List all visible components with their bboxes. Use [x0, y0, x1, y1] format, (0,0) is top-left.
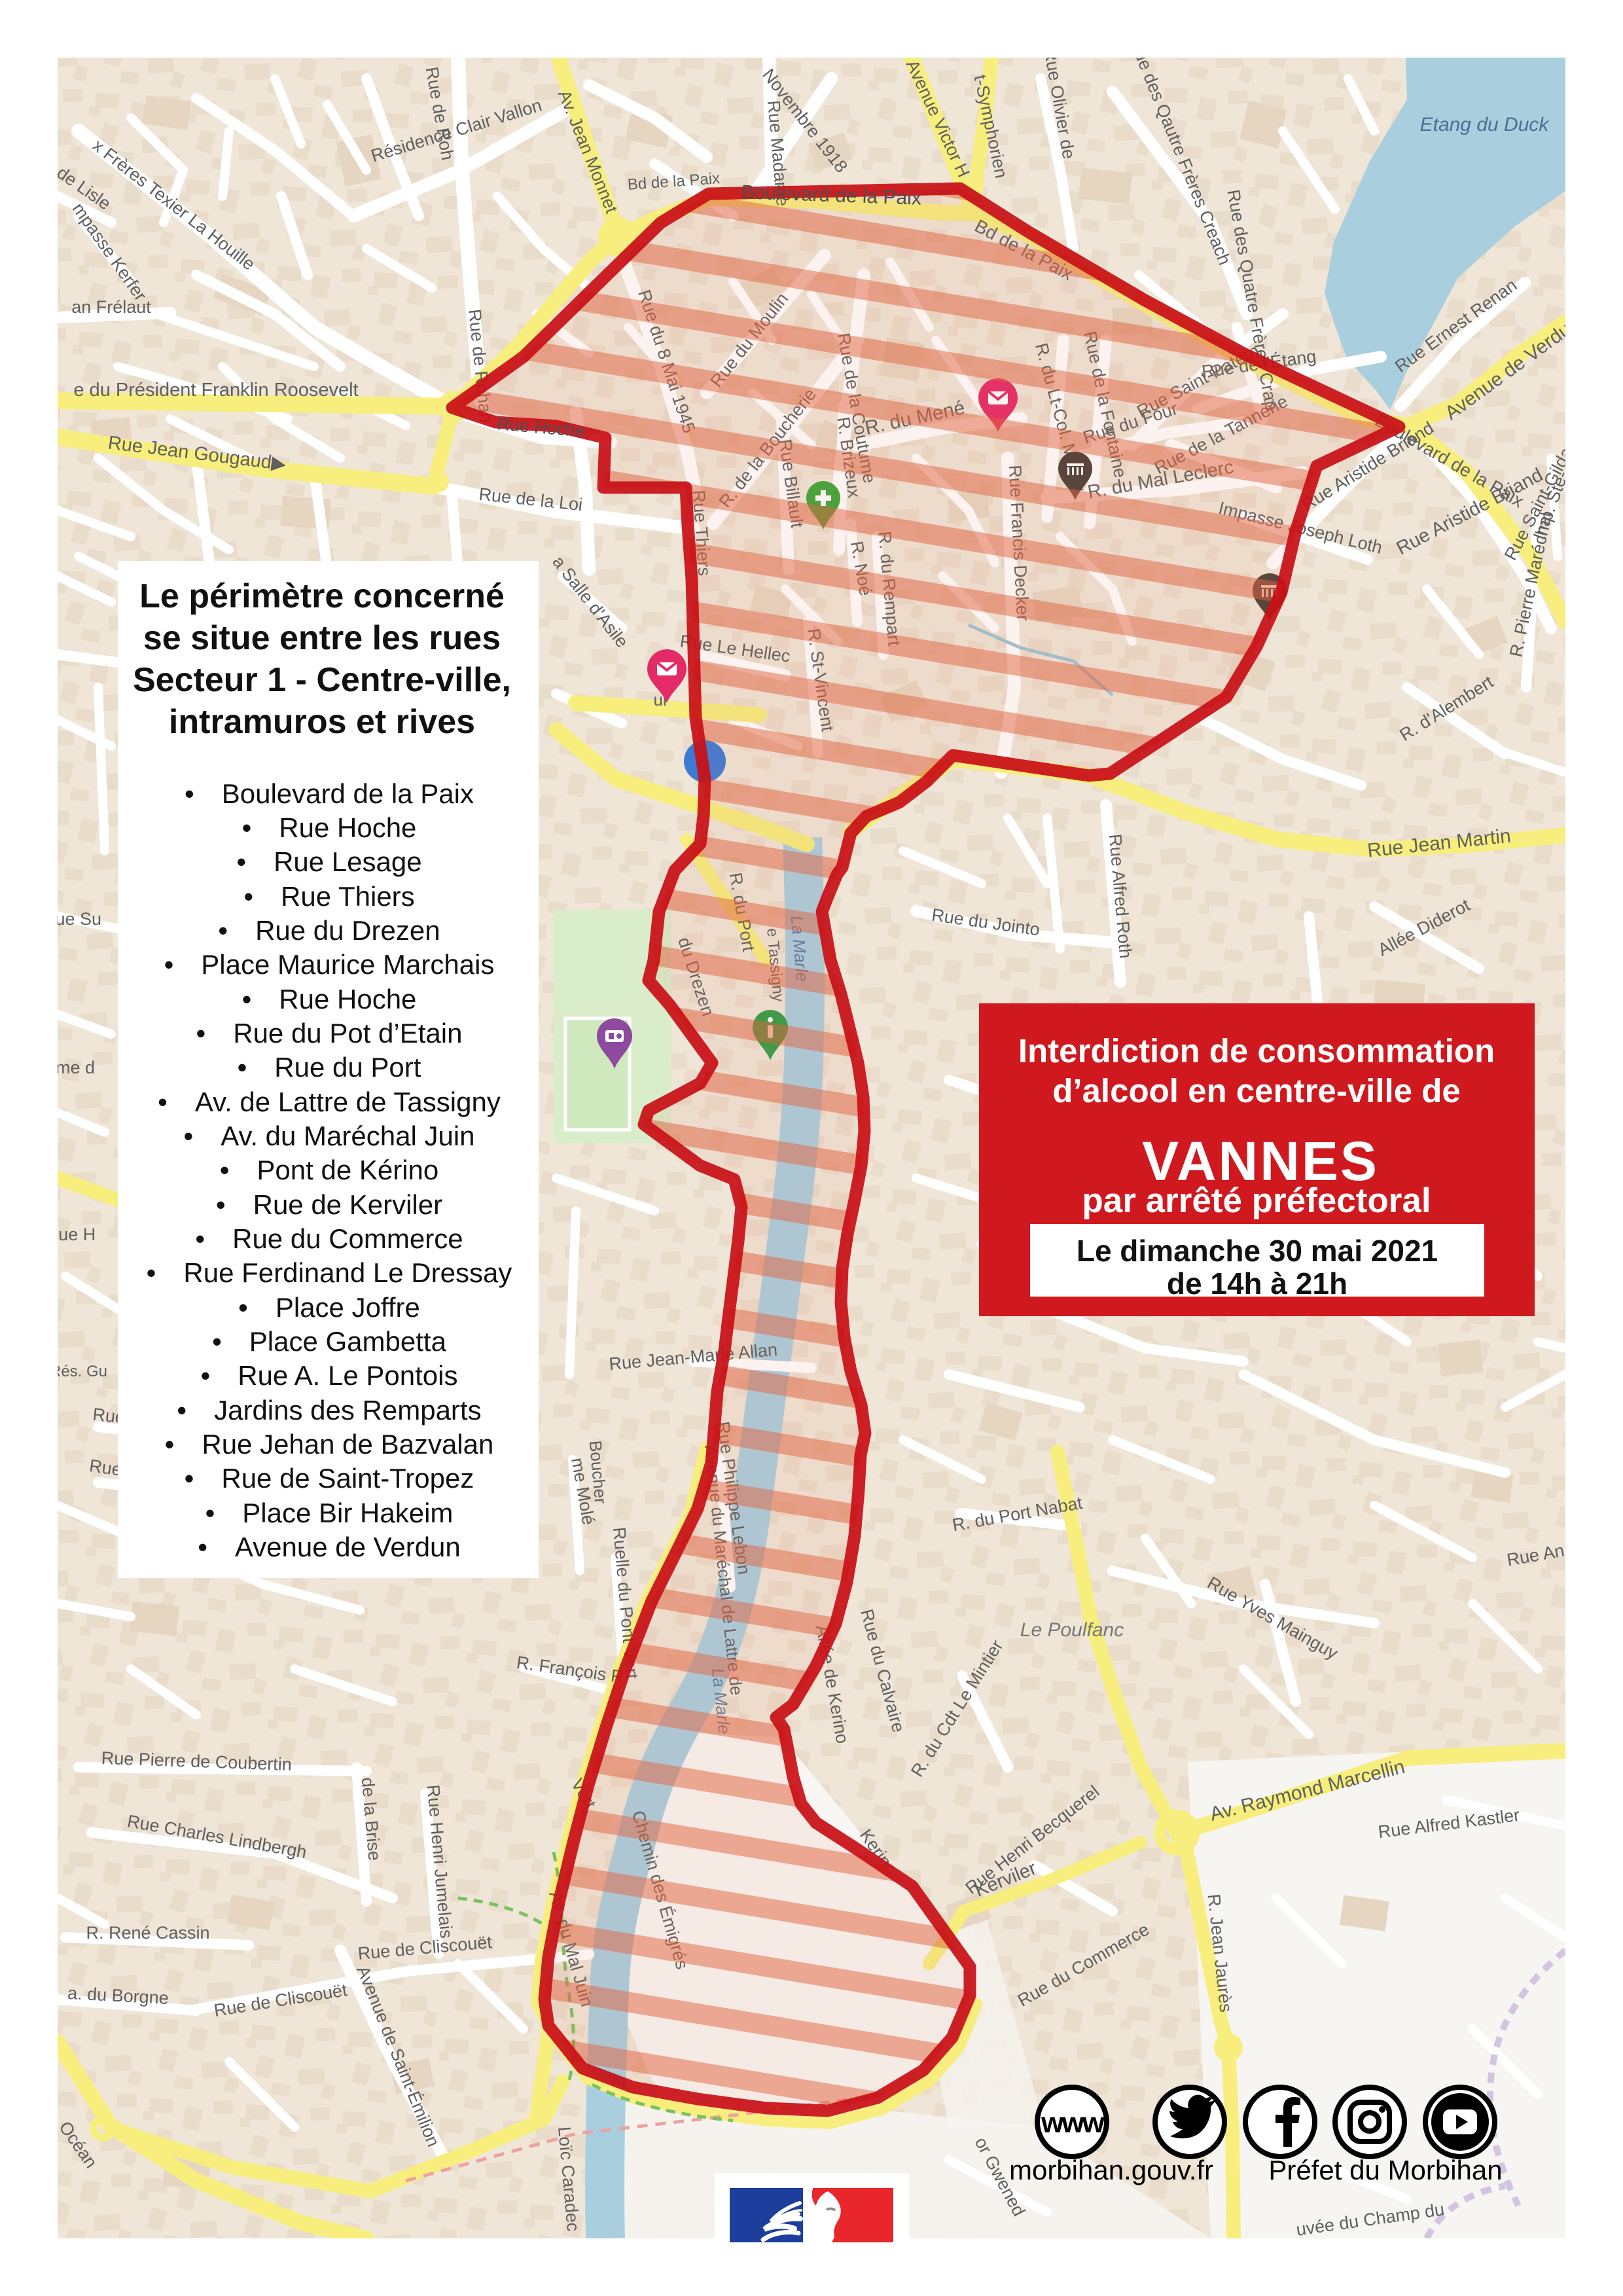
svg-text:• Rue A. Le Pontois: • Rue A. Le Pontois [201, 1360, 458, 1391]
svg-text:• Place Maurice Marchais: • Place Maurice Marchais [164, 949, 495, 980]
svg-text:• Rue Thiers: • Rue Thiers [243, 881, 414, 912]
svg-text:• Rue de Saint-Tropez: • Rue de Saint-Tropez [185, 1463, 474, 1494]
svg-text:• Rue de Kerviler: • Rue de Kerviler [216, 1189, 442, 1220]
svg-text:www: www [1041, 2107, 1105, 2139]
svg-text:• Rue Lesage: • Rue Lesage [236, 846, 421, 877]
svg-text:• Av. de Lattre de Tassigny: • Av. de Lattre de Tassigny [158, 1086, 501, 1117]
svg-text:R. René Cassin: R. René Cassin [86, 1923, 209, 1943]
svg-text:• Jardins des Remparts: • Jardins des Remparts [177, 1395, 481, 1426]
svg-text:• Av. du Maréchal Juin: • Av. du Maréchal Juin [183, 1121, 474, 1151]
svg-text:an Frélaut: an Frélaut [71, 297, 151, 317]
svg-text:Interdiction de consommation: Interdiction de consommation [1018, 1032, 1495, 1069]
svg-text:d’alcool en centre-ville de: d’alcool en centre-ville de [1052, 1072, 1461, 1109]
svg-text:Rés. Gu: Rés. Gu [50, 1363, 107, 1380]
svg-text:• Rue Ferdinand Le Dressay: • Rue Ferdinand Le Dressay [147, 1257, 512, 1288]
svg-text:• Rue Jehan de Bazvalan: • Rue Jehan de Bazvalan [165, 1429, 494, 1460]
svg-text:Préfet du Morbihan: Préfet du Morbihan [1268, 2155, 1502, 2185]
svg-text:• Avenue de Verdun: • Avenue de Verdun [198, 1532, 461, 1562]
svg-text:• Place Bir Hakeim: • Place Bir Hakeim [205, 1498, 454, 1528]
svg-text:Le dimanche 30 mai 2021: Le dimanche 30 mai 2021 [1077, 1234, 1438, 1268]
svg-text:• Rue du Port: • Rue du Port [238, 1052, 421, 1083]
svg-text:Le périmètre concerné: Le périmètre concerné [139, 577, 505, 615]
svg-text:Le Poulfanc: Le Poulfanc [1020, 1619, 1124, 1641]
svg-text:rôme d: rôme d [40, 1058, 95, 1077]
svg-text:Secteur 1 - Centre-ville,: Secteur 1 - Centre-ville, [133, 661, 511, 699]
svg-text:intramuros et rives: intramuros et rives [169, 703, 475, 741]
svg-text:• Rue du Drezen: • Rue du Drezen [218, 915, 440, 946]
svg-text:Rue H: Rue H [46, 1225, 96, 1244]
svg-text:• Place Gambetta: • Place Gambetta [212, 1326, 447, 1357]
svg-text:• Place Joffre: • Place Joffre [238, 1292, 420, 1323]
svg-text:• Pont de Kérino: • Pont de Kérino [220, 1155, 439, 1185]
svg-text:Etang du Duck: Etang du Duck [1420, 114, 1550, 135]
svg-text:• Rue du Pot d’Etain: • Rue du Pot d’Etain [196, 1018, 463, 1049]
svg-text:• Boulevard de la Paix: • Boulevard de la Paix [185, 778, 474, 809]
svg-text:• Rue du Commerce: • Rue du Commerce [195, 1223, 463, 1254]
svg-text:de 14h à 21h: de 14h à 21h [1167, 1266, 1347, 1300]
svg-text:Rue Su: Rue Su [43, 909, 101, 929]
svg-text:• Rue Hoche: • Rue Hoche [242, 984, 417, 1014]
svg-text:• Rue Hoche: • Rue Hoche [242, 812, 417, 843]
svg-text:e du Président Franklin Roosev: e du Président Franklin Roosevelt [73, 380, 358, 401]
svg-text:se situe entre les rues: se situe entre les rues [143, 619, 501, 657]
svg-text:par arrêté préfectoral: par arrêté préfectoral [1082, 1181, 1431, 1220]
svg-text:morbihan.gouv.fr: morbihan.gouv.fr [1009, 2155, 1213, 2185]
